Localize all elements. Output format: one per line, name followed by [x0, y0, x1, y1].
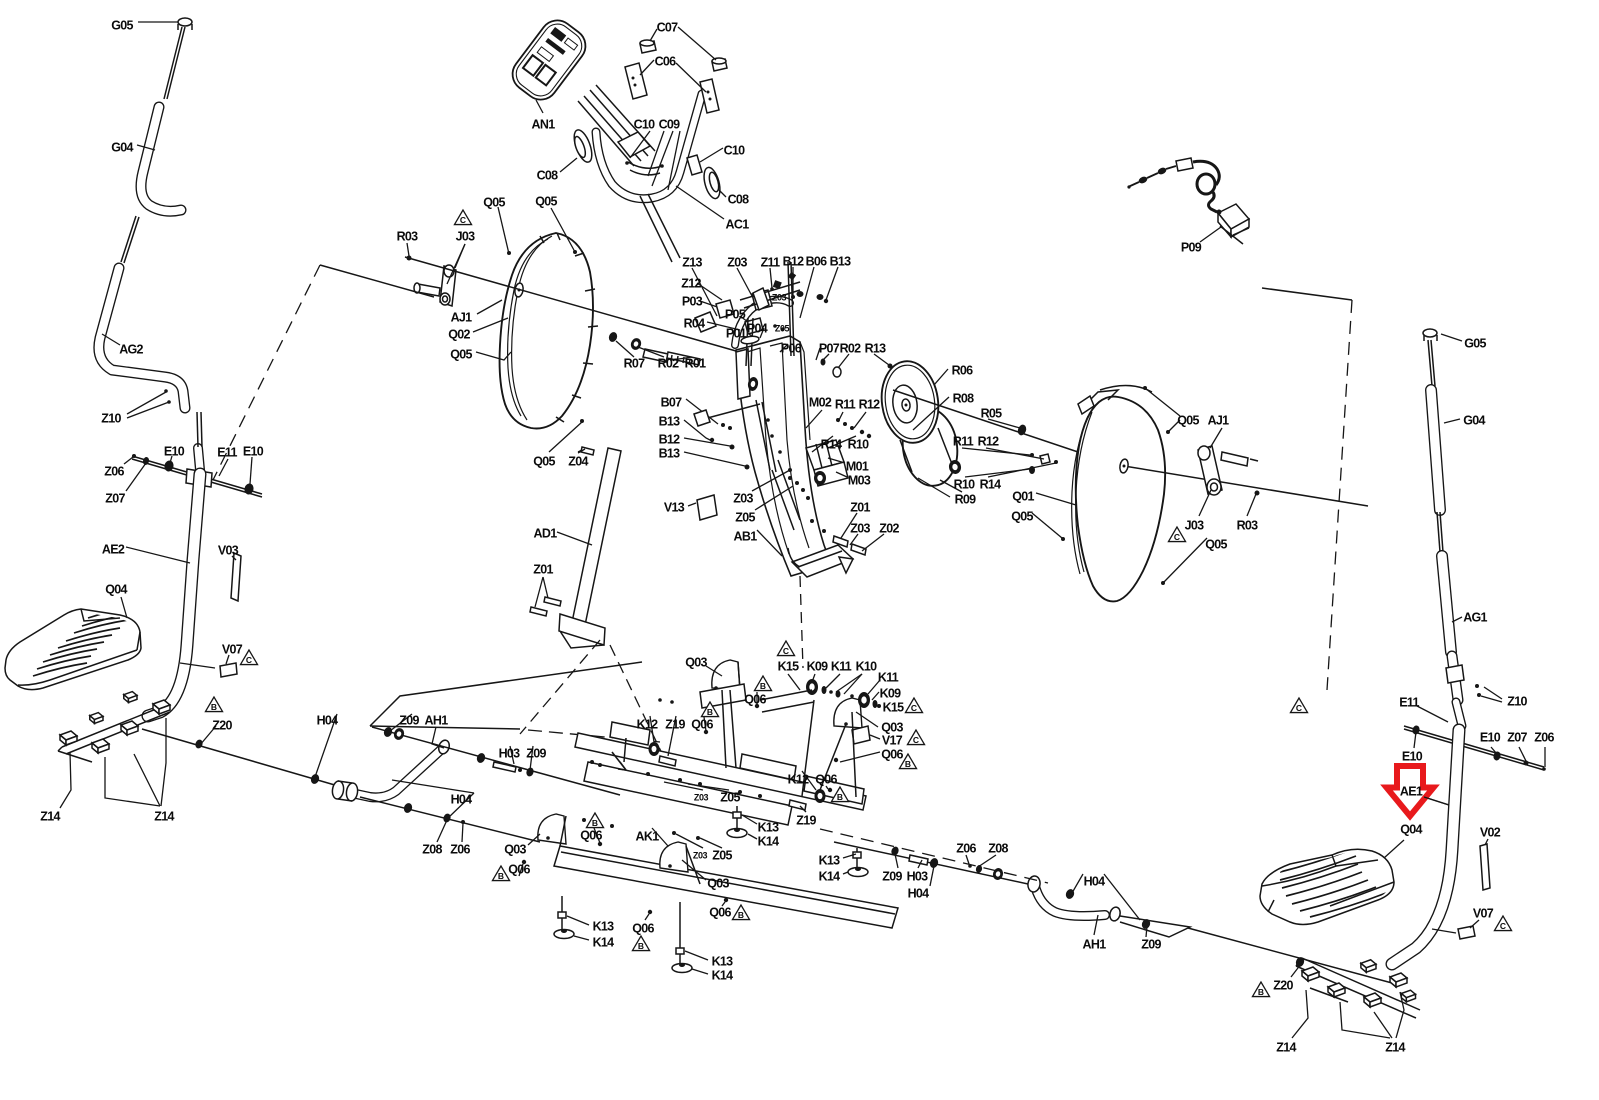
svg-text:C10: C10 [634, 118, 656, 132]
svg-text:Z14: Z14 [1276, 1041, 1296, 1055]
svg-text:E10: E10 [164, 445, 185, 459]
svg-text:Z20: Z20 [1273, 979, 1293, 993]
svg-text:C: C [913, 735, 919, 745]
svg-text:Z03: Z03 [727, 256, 747, 270]
svg-text:R03: R03 [1237, 519, 1259, 533]
svg-text:G04: G04 [1463, 414, 1485, 428]
svg-text:Z03: Z03 [693, 851, 708, 861]
svg-text:G05: G05 [1464, 337, 1486, 351]
svg-text:Z05: Z05 [720, 791, 740, 805]
svg-text:AJ1: AJ1 [1208, 414, 1230, 428]
svg-text:B: B [498, 871, 504, 881]
svg-text:R10: R10 [954, 478, 976, 492]
svg-text:M01: M01 [846, 460, 869, 474]
svg-text:R08: R08 [953, 392, 975, 406]
svg-text:K10: K10 [856, 660, 878, 674]
svg-text:G04: G04 [111, 141, 133, 155]
svg-text:R11: R11 [953, 435, 974, 449]
svg-text:C: C [460, 215, 466, 225]
svg-text:V17: V17 [882, 734, 903, 748]
svg-text:R10: R10 [848, 438, 870, 452]
svg-text:Z19: Z19 [665, 718, 685, 732]
svg-text:C06: C06 [655, 55, 677, 69]
svg-text:B: B [905, 759, 911, 769]
svg-text:K14: K14 [712, 969, 734, 983]
svg-text:K09: K09 [807, 660, 829, 674]
svg-text:K14: K14 [819, 870, 841, 884]
svg-text:K13: K13 [593, 920, 615, 934]
svg-text:P05: P05 [725, 308, 746, 322]
svg-text:Z03: Z03 [850, 522, 870, 536]
svg-text:R12: R12 [978, 435, 1000, 449]
svg-text:R14: R14 [821, 438, 843, 452]
svg-text:K14: K14 [758, 835, 780, 849]
svg-text:AN1: AN1 [532, 118, 556, 132]
svg-text:Q03: Q03 [685, 656, 707, 670]
svg-text:AK1: AK1 [636, 830, 660, 844]
svg-text:J03: J03 [456, 230, 476, 244]
svg-text:K13: K13 [819, 854, 841, 868]
svg-text:B12: B12 [659, 433, 681, 447]
svg-text:Q05: Q05 [1011, 510, 1033, 524]
svg-text:Z14: Z14 [1385, 1041, 1405, 1055]
svg-text:V13: V13 [664, 501, 685, 515]
svg-text:Z09: Z09 [526, 747, 546, 761]
svg-text:K13: K13 [758, 821, 780, 835]
svg-text:Q03: Q03 [707, 877, 729, 891]
svg-text:H04: H04 [451, 793, 473, 807]
svg-text:R11: R11 [835, 398, 856, 412]
svg-text:Q01: Q01 [1012, 490, 1034, 504]
svg-text:K09: K09 [880, 687, 902, 701]
svg-text:Z03: Z03 [694, 793, 709, 803]
svg-text:Q06: Q06 [632, 922, 654, 936]
svg-text:K13: K13 [712, 955, 734, 969]
svg-text:K15: K15 [778, 660, 800, 674]
svg-text:V03: V03 [218, 544, 239, 558]
svg-text:P09: P09 [1181, 241, 1202, 255]
svg-text:Z08: Z08 [988, 842, 1008, 856]
svg-text:B: B [211, 702, 217, 712]
svg-text:B: B [638, 941, 644, 951]
svg-text:R02: R02 [840, 342, 862, 356]
svg-text:C: C [1500, 921, 1506, 931]
svg-text:R03: R03 [397, 230, 419, 244]
svg-text:B: B [837, 792, 843, 802]
svg-text:V02: V02 [1480, 826, 1501, 840]
svg-text:Q05: Q05 [533, 455, 555, 469]
svg-text:P04: P04 [747, 322, 768, 336]
svg-text:B: B [760, 681, 766, 691]
svg-text:Q06: Q06 [709, 906, 731, 920]
svg-text:Q04: Q04 [105, 583, 127, 597]
svg-text:K11: K11 [831, 660, 852, 674]
svg-text:E11: E11 [217, 446, 237, 460]
svg-text:H04: H04 [317, 714, 339, 728]
svg-text:J03: J03 [1185, 519, 1205, 533]
svg-text:B07: B07 [661, 396, 683, 410]
svg-text:Z06: Z06 [956, 842, 976, 856]
svg-text:K14: K14 [593, 936, 615, 950]
svg-text:C09: C09 [659, 118, 681, 132]
svg-text:R07: R07 [624, 357, 646, 371]
svg-text:Z04: Z04 [568, 455, 588, 469]
svg-text:C08: C08 [728, 193, 750, 207]
svg-text:AG2: AG2 [119, 343, 143, 357]
svg-text:Z10: Z10 [1507, 695, 1527, 709]
svg-text:C10: C10 [724, 144, 746, 158]
svg-text:Q05: Q05 [450, 348, 472, 362]
svg-text:Z14: Z14 [40, 810, 60, 824]
svg-text:Q06: Q06 [815, 773, 837, 787]
svg-text:B13: B13 [830, 255, 852, 269]
svg-text:B06: B06 [806, 255, 828, 269]
svg-text:C: C [911, 703, 917, 713]
svg-text:H04: H04 [908, 887, 930, 901]
svg-text:R06: R06 [952, 364, 974, 378]
svg-text:H03: H03 [907, 870, 929, 884]
svg-text:Z03: Z03 [733, 492, 753, 506]
svg-text:E10: E10 [1480, 731, 1501, 745]
svg-text:AH1: AH1 [1083, 938, 1107, 952]
svg-text:Z05: Z05 [775, 324, 790, 334]
svg-text:C07: C07 [657, 21, 679, 35]
svg-text:Z11: Z11 [761, 256, 780, 270]
svg-text:Q06: Q06 [744, 693, 766, 707]
svg-text:AE2: AE2 [102, 543, 125, 557]
svg-text:R05: R05 [981, 407, 1003, 421]
svg-text:E10: E10 [1402, 750, 1423, 764]
svg-text:Z09: Z09 [1141, 938, 1161, 952]
svg-text:E10: E10 [243, 445, 264, 459]
svg-text:Z01: Z01 [533, 563, 553, 577]
svg-text:AH1: AH1 [425, 714, 449, 728]
svg-text:P01: P01 [726, 327, 747, 341]
svg-text:Q06: Q06 [508, 863, 530, 877]
svg-text:K12: K12 [788, 773, 810, 787]
svg-text:AE1: AE1 [1400, 785, 1423, 799]
svg-text:Z01: Z01 [850, 501, 870, 515]
svg-text:M02: M02 [809, 396, 832, 410]
svg-text:Z10: Z10 [101, 412, 121, 426]
svg-text:V07: V07 [222, 643, 243, 657]
svg-text:Z05: Z05 [712, 849, 732, 863]
svg-text:C: C [1174, 532, 1180, 542]
svg-text:Q05: Q05 [535, 195, 557, 209]
svg-text:H04: H04 [1084, 875, 1106, 889]
svg-text:B: B [592, 818, 598, 828]
svg-text:R04: R04 [684, 317, 706, 331]
svg-text:R12: R12 [859, 398, 881, 412]
svg-text:Q05: Q05 [483, 196, 505, 210]
svg-text:B: B [738, 910, 744, 920]
svg-text:AC1: AC1 [726, 218, 750, 232]
svg-text:Z06: Z06 [450, 843, 470, 857]
svg-text:R14: R14 [980, 478, 1002, 492]
svg-text:Z19: Z19 [796, 814, 816, 828]
svg-text:M03: M03 [848, 474, 871, 488]
svg-text:C: C [783, 646, 789, 656]
svg-text:C08: C08 [537, 169, 559, 183]
svg-text:R09: R09 [955, 493, 977, 507]
svg-text:H03: H03 [499, 747, 521, 761]
svg-text:Z06: Z06 [1534, 731, 1554, 745]
svg-text:P07: P07 [819, 342, 840, 356]
svg-text:V07: V07 [1473, 907, 1494, 921]
svg-text:Q03: Q03 [504, 843, 526, 857]
svg-text:K12: K12 [637, 718, 659, 732]
svg-text:AD1: AD1 [534, 527, 558, 541]
svg-text:P06: P06 [781, 342, 802, 356]
svg-text:Z02: Z02 [879, 522, 899, 536]
svg-text:Z13: Z13 [682, 256, 702, 270]
svg-text:Q05: Q05 [1205, 538, 1227, 552]
svg-text:R02: R02 [658, 357, 680, 371]
svg-text:Z07: Z07 [1507, 731, 1527, 745]
svg-text:B13: B13 [659, 415, 681, 429]
svg-text:K15: K15 [883, 701, 905, 715]
svg-text:B13: B13 [659, 447, 681, 461]
svg-text:B: B [1258, 987, 1264, 997]
svg-text:Q02: Q02 [448, 328, 470, 342]
svg-text:G05: G05 [111, 19, 133, 33]
svg-text:P03: P03 [682, 295, 703, 309]
svg-text:C: C [1296, 703, 1302, 713]
svg-text:Z03: Z03 [772, 293, 787, 303]
svg-text:Z09: Z09 [399, 714, 419, 728]
svg-text:Z20: Z20 [212, 719, 232, 733]
svg-text:B12: B12 [783, 255, 805, 269]
svg-text:Q06: Q06 [580, 829, 602, 843]
svg-text:R13: R13 [865, 342, 887, 356]
svg-text:Q03: Q03 [881, 721, 903, 735]
svg-text:AB1: AB1 [734, 530, 758, 544]
svg-text:Z09: Z09 [882, 870, 902, 884]
svg-text:Q05: Q05 [1177, 414, 1199, 428]
svg-text:E11: E11 [1399, 696, 1419, 710]
svg-text:AG1: AG1 [1463, 611, 1487, 625]
svg-text:Z08: Z08 [422, 843, 442, 857]
svg-text:Q04: Q04 [1400, 823, 1422, 837]
svg-text:AJ1: AJ1 [451, 311, 473, 325]
svg-text:Q06: Q06 [881, 748, 903, 762]
svg-text:Q06: Q06 [691, 718, 713, 732]
svg-text:Z12: Z12 [681, 277, 701, 291]
svg-text:Z07: Z07 [105, 492, 125, 506]
svg-text:C: C [246, 655, 252, 665]
svg-text:B: B [707, 707, 713, 717]
svg-text:R01: R01 [685, 357, 707, 371]
svg-text:Z05: Z05 [735, 511, 755, 525]
svg-text:K11: K11 [878, 671, 899, 685]
svg-text:Z06: Z06 [104, 465, 124, 479]
svg-text:Z14: Z14 [154, 810, 174, 824]
